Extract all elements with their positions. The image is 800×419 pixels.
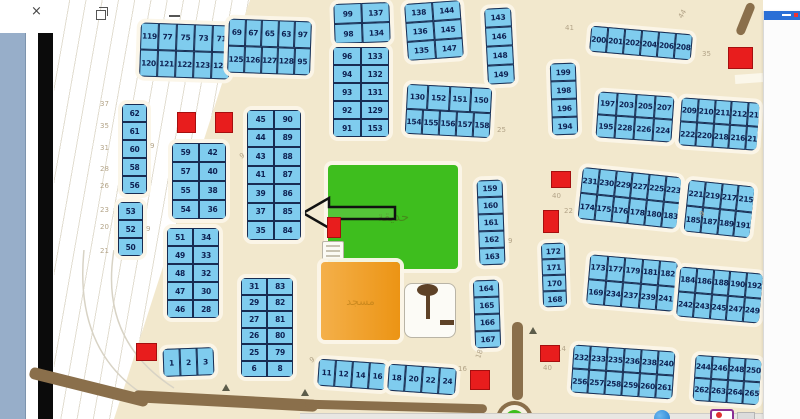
plot-cell: 203 [616, 93, 637, 117]
dimension-label: 23 [100, 206, 109, 214]
plot-cell: 194 [552, 117, 579, 136]
plot-cell: 179 [623, 257, 643, 283]
plot-cell: 166 [474, 314, 501, 332]
taskbar-strip [300, 413, 763, 419]
plot-cell: 132 [361, 65, 389, 83]
vertical-road [512, 322, 523, 400]
red-landmark [136, 343, 157, 361]
plot-cell: 26 [241, 328, 267, 345]
plot-cell: 224 [652, 118, 673, 142]
plot-cell: 258 [604, 371, 623, 396]
plot-cell: 28 [193, 300, 219, 318]
plot-block: 184186188190192242243245247249 [676, 266, 763, 323]
plot-cell: 86 [274, 184, 301, 203]
plot-cell: 31 [241, 278, 267, 295]
plot-cell: 51 [167, 228, 193, 246]
plot-cell: 119 [140, 22, 159, 50]
dimension-label: 26 [100, 182, 109, 190]
plot-block: 197203205207195228226224 [595, 91, 674, 142]
plot-cell: 88 [274, 147, 301, 166]
plot-cell: 77 [158, 23, 177, 51]
plot-cell: 80 [267, 328, 293, 345]
plot-cell: 94 [333, 65, 361, 83]
plot-block: 221219217215185187189191 [683, 180, 754, 239]
taskbar-icon-folder[interactable] [737, 412, 755, 419]
plot-cell: 233 [589, 346, 608, 371]
red-landmark [540, 345, 560, 362]
plot-cell: 151 [449, 86, 472, 112]
mosque-label: مسجد [346, 295, 375, 308]
plot-cell: 133 [361, 47, 389, 65]
plot-cell: 265 [743, 381, 761, 405]
taskbar-icon-browser[interactable] [654, 410, 670, 419]
red-landmark [177, 112, 196, 133]
plot-cell: 34 [193, 228, 219, 246]
dimension-label: 40 [543, 364, 552, 372]
plot-cell: 162 [478, 231, 505, 249]
plot-block: 123 [163, 347, 215, 377]
plot-cell: 232 [572, 345, 591, 370]
map-border-bar [38, 33, 53, 419]
plot-cell: 261 [655, 374, 674, 399]
dimension-label: 35 [100, 122, 109, 130]
plot-cell: 198 [550, 81, 577, 100]
plot-block: 173177179181182169234237239241 [586, 254, 678, 311]
plot-cell: 222 [678, 121, 696, 146]
plot-cell: 45 [247, 110, 274, 129]
plot-cell: 215 [736, 185, 754, 213]
plot-cell: 44 [247, 129, 274, 148]
plot-cell: 210 [697, 99, 715, 124]
dimension-label: 9 [508, 237, 512, 245]
plot-cell: 154 [405, 109, 423, 135]
plot-block: 11121416 [317, 359, 387, 391]
plot-cell: 36 [199, 200, 226, 219]
plot-cell: 172 [541, 243, 566, 260]
plot-cell: 137 [361, 2, 390, 23]
plot-cell: 39 [247, 184, 274, 203]
plot-cell: 24 [438, 367, 457, 395]
plot-cell: 93 [333, 83, 361, 101]
dimension-label: 22 [564, 207, 573, 215]
plot-cell: 38 [199, 181, 226, 200]
road-marker-icon [301, 389, 309, 396]
road-marker-icon [222, 384, 230, 391]
plot-cell: 37 [247, 203, 274, 222]
plot-cell: 136 [405, 21, 434, 42]
plot-cell: 181 [640, 259, 660, 285]
plot-cell: 96 [333, 47, 361, 65]
plot-cell: 63 [277, 20, 294, 48]
minaret-icon [440, 320, 454, 325]
plot-cell: 126 [244, 46, 262, 74]
plot-cell: 223 [664, 176, 682, 204]
window-edge-strip [0, 33, 26, 419]
plot-cell: 123 [193, 51, 212, 79]
plot-block: 9613394132931319212991153 [333, 47, 389, 137]
plot-block: 172171170168 [541, 243, 567, 308]
plot-cell: 56 [122, 176, 147, 194]
street [735, 73, 764, 84]
plot-cell: 89 [274, 129, 301, 148]
minaret-icon [417, 284, 438, 296]
plot-cell: 161 [478, 214, 505, 232]
plot-cell: 48 [167, 264, 193, 282]
plot-block: 5942574055385436 [172, 143, 226, 219]
plot-block: 199198196194 [550, 63, 578, 136]
plot-block: 164165166167 [473, 280, 501, 349]
plot-cell: 165 [473, 297, 500, 315]
plot-cell: 3 [197, 347, 215, 376]
plot-cell: 97 [294, 21, 311, 49]
plot-cell: 173 [588, 254, 608, 280]
plot-cell: 149 [487, 64, 515, 84]
plot-cell: 208 [674, 33, 693, 60]
plot-cell: 121 [157, 50, 176, 78]
plot-block: 18202224 [387, 364, 457, 396]
dimension-label: 21 [100, 247, 109, 255]
plot-cell: 43 [247, 147, 274, 166]
plot-cell: 75 [176, 24, 195, 52]
plot-cell: 120 [139, 49, 158, 77]
plot-cell: 257 [587, 370, 606, 395]
plot-cell: 234 [603, 281, 623, 307]
plot-cell: 67 [245, 19, 262, 47]
plot-cell: 164 [473, 280, 500, 298]
plot-cell: 129 [361, 101, 389, 119]
plot-cell: 20 [404, 365, 423, 393]
plot-cell: 42 [199, 143, 226, 162]
plot-cell: 35 [247, 221, 274, 240]
minaret-icon [426, 292, 430, 319]
plot-cell: 62 [122, 104, 147, 122]
plot-cell: 57 [172, 162, 199, 181]
plot-cell: 131 [361, 83, 389, 101]
plot-cell: 83 [267, 278, 293, 295]
panel-close-dot [794, 13, 798, 17]
plot-cell: 11 [317, 359, 336, 387]
plot-cell: 58 [122, 158, 147, 176]
close-icon[interactable]: × [31, 5, 42, 18]
plot-cell: 207 [654, 95, 675, 119]
plot-cell: 81 [267, 311, 293, 328]
annotation-arrow-icon [299, 192, 399, 234]
plot-cell: 22 [421, 366, 440, 394]
plot-block: 231230229227225223174175176178180183 [578, 167, 682, 229]
plot-cell: 33 [193, 246, 219, 264]
red-landmark [543, 210, 559, 233]
red-landmark [327, 217, 341, 238]
plot-cell: 49 [167, 246, 193, 264]
plot-cell: 46 [167, 300, 193, 318]
plot-block: 143146148149 [484, 7, 515, 84]
plot-cell: 240 [657, 350, 676, 375]
map-viewer-window: × حديقة مسجد 119777573711201211221231246… [0, 0, 800, 419]
dimension-label: 41 [565, 24, 574, 32]
dimension-label: 28 [100, 165, 109, 173]
plot-cell: 216 [729, 125, 747, 150]
plot-cell: 65 [261, 20, 278, 48]
dimension-label: 35 [702, 50, 711, 58]
plot-block: 159160161162163 [477, 180, 506, 266]
plot-cell: 2 [180, 348, 198, 377]
plot-cell: 143 [484, 7, 512, 27]
plot-cell: 169 [586, 279, 606, 305]
plot-block: 209210211212213222220218216214 [678, 97, 759, 150]
plot-cell: 228 [614, 116, 635, 140]
plot-cell: 40 [199, 162, 226, 181]
plot-block: 130152151150154155156157158 [405, 84, 493, 138]
plot-cell: 82 [267, 295, 293, 312]
plot-cell: 192 [745, 272, 763, 298]
plot-block: 138144136145135147 [404, 0, 464, 61]
plot-cell: 241 [656, 285, 676, 311]
plot-cell: 170 [542, 275, 567, 292]
plot-cell: 130 [406, 84, 429, 110]
plot-block: 51344933483247304628 [167, 228, 219, 318]
plot-cell: 146 [485, 26, 513, 46]
plot-cell: 246 [711, 356, 729, 380]
plot-cell: 147 [435, 38, 464, 59]
plot-cell: 212 [730, 101, 748, 126]
plot-block: 696765639712512612712895 [227, 19, 311, 76]
plot-block: 6261605856 [122, 104, 147, 194]
plot-cell: 218 [712, 124, 730, 149]
plot-cell: 125 [227, 46, 245, 74]
plot-cell: 50 [118, 238, 143, 256]
plot-cell: 160 [477, 197, 504, 215]
plot-cell: 235 [606, 347, 625, 372]
plot-cell: 220 [695, 122, 713, 147]
plot-cell: 152 [427, 85, 450, 111]
plot-cell: 91 [333, 119, 361, 137]
plot-cell: 52 [118, 220, 143, 238]
plot-cell: 226 [633, 117, 654, 141]
plot-cell: 30 [193, 282, 219, 300]
dimension-label: 31 [100, 144, 109, 152]
plot-cell: 69 [228, 19, 245, 47]
plot-cell: 177 [606, 256, 626, 282]
taskbar-icon-app[interactable] [710, 409, 734, 419]
plot-cell: 159 [477, 180, 504, 198]
plot-cell: 195 [595, 114, 616, 138]
plot-cell: 248 [728, 357, 746, 381]
plot-cell: 163 [479, 248, 506, 266]
plot-cell: 244 [694, 355, 712, 379]
plot-cell: 79 [267, 344, 293, 361]
plot-cell: 171 [541, 259, 566, 276]
restore-icon[interactable] [96, 10, 106, 20]
plot-cell: 197 [597, 91, 618, 115]
plot-block: 4590448943884187398637853584 [247, 110, 301, 240]
plot-cell: 135 [407, 40, 436, 61]
dimension-label: 20 [100, 223, 109, 231]
services-building [322, 241, 344, 260]
plot-cell: 85 [274, 203, 301, 222]
plot-cell: 127 [261, 47, 279, 75]
plot-cell: 99 [333, 3, 362, 24]
plot-cell: 1 [163, 348, 181, 377]
plot-cell: 98 [334, 23, 363, 44]
plot-cell: 54 [172, 200, 199, 219]
plot-cell: 145 [433, 19, 462, 40]
plot-cell: 60 [122, 140, 147, 158]
plot-cell: 41 [247, 166, 274, 185]
plot-cell: 32 [193, 264, 219, 282]
red-landmark [215, 112, 233, 133]
plot-cell: 29 [241, 295, 267, 312]
plot-cell: 239 [638, 284, 658, 310]
plot-cell: 12 [334, 360, 353, 388]
plot-cell: 236 [623, 348, 642, 373]
plot-cell: 16 [368, 362, 387, 390]
plot-cell: 8 [267, 361, 293, 378]
plot-cell: 211 [714, 100, 732, 125]
plot-cell: 122 [175, 51, 194, 79]
road-marker-icon [529, 327, 537, 334]
plot-block: 3183298227812680257968 [241, 278, 293, 377]
plot-cell: 238 [640, 349, 659, 374]
dimension-label: 9 [146, 225, 150, 233]
plot-cell: 199 [550, 63, 577, 82]
plot-block: 244246248250262263264265 [692, 355, 761, 405]
plot-cell: 47 [167, 282, 193, 300]
plot-cell: 263 [709, 379, 727, 403]
red-landmark [470, 370, 490, 390]
plot-cell: 90 [274, 110, 301, 129]
panel-titlebar [764, 11, 800, 20]
plot-cell: 157 [456, 111, 474, 137]
plot-block: 535250 [118, 202, 143, 256]
plot-cell: 92 [333, 101, 361, 119]
plot-cell: 237 [621, 282, 641, 308]
plot-cell: 59 [172, 143, 199, 162]
plot-cell: 250 [744, 358, 761, 382]
plot-cell: 155 [422, 110, 440, 136]
plot-cell: 6 [241, 361, 267, 378]
plot-cell: 168 [543, 291, 568, 308]
mosque-area: مسجد [321, 262, 400, 340]
red-landmark [551, 171, 571, 188]
plot-cell: 134 [362, 22, 391, 43]
right-panel [763, 11, 800, 419]
plot-cell: 25 [241, 344, 267, 361]
plot-cell: 95 [294, 48, 310, 76]
dimension-label: 16 [458, 365, 467, 373]
plot-cell: 264 [726, 380, 744, 404]
plot-cell: 182 [658, 260, 678, 286]
plot-cell: 53 [118, 202, 143, 220]
plot-block: 11977757371120121122123124 [139, 22, 231, 79]
plot-cell: 14 [351, 361, 370, 389]
plot-cell: 27 [241, 311, 267, 328]
plot-cell: 205 [635, 94, 656, 118]
red-landmark [728, 47, 753, 69]
plot-cell: 138 [404, 2, 433, 23]
plot-cell: 144 [432, 0, 461, 21]
plot-cell: 156 [439, 111, 457, 137]
plot-cell: 87 [274, 166, 301, 185]
dimension-label: 37 [100, 100, 109, 108]
plot-block: 9913798134 [333, 2, 390, 44]
plot-cell: 61 [122, 122, 147, 140]
plot-cell: 73 [194, 24, 213, 52]
plot-cell: 153 [361, 119, 389, 137]
plot-cell: 260 [638, 373, 657, 398]
minimize-icon[interactable] [169, 15, 180, 17]
plot-cell: 262 [692, 378, 710, 402]
plot-cell: 259 [621, 372, 640, 397]
plot-cell: 213 [747, 102, 759, 127]
plot-cell: 196 [551, 99, 578, 118]
plot-cell: 148 [486, 45, 514, 65]
plot-cell: 150 [470, 87, 493, 113]
plot-cell: 256 [570, 368, 589, 393]
dimension-label: 9 [150, 142, 154, 150]
plot-cell: 128 [277, 47, 295, 75]
plot-block: 232233235236238240256257258259260261 [570, 345, 675, 400]
plot-cell: 18 [387, 364, 406, 392]
plot-cell: 209 [680, 97, 698, 122]
plot-cell: 55 [172, 181, 199, 200]
dimension-label: 40 [552, 192, 561, 200]
plot-cell: 84 [274, 221, 301, 240]
plot-cell: 158 [473, 112, 491, 138]
plot-cell: 167 [475, 331, 502, 349]
dimension-label: 25 [497, 126, 506, 134]
